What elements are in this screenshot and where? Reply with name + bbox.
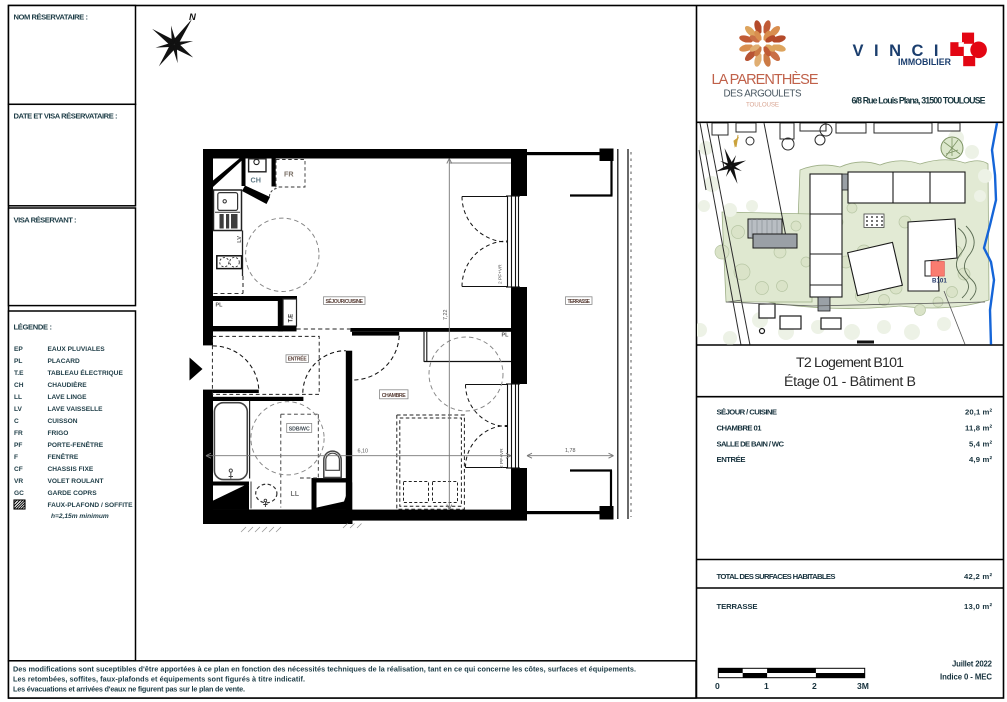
svg-text:GC: GC	[14, 490, 24, 497]
svg-text:NOM RÉSERVATAIRE :: NOM RÉSERVATAIRE :	[14, 13, 89, 22]
svg-text:T.E: T.E	[14, 370, 24, 377]
svg-text:SÉJOUR/CUISINE: SÉJOUR/CUISINE	[325, 297, 363, 305]
svg-text:SÉJOUR / CUISINE: SÉJOUR / CUISINE	[717, 408, 778, 417]
svg-text:h=2,15m minimum: h=2,15m minimum	[51, 513, 109, 520]
svg-text:F: F	[14, 454, 18, 461]
svg-text:TOTAL DES SURFACES HABITABLES: TOTAL DES SURFACES HABITABLES	[717, 572, 836, 581]
svg-text:VOLET ROULANT: VOLET ROULANT	[48, 478, 104, 485]
svg-text:FENÊTRE: FENÊTRE	[48, 452, 79, 461]
svg-text:6,10: 6,10	[358, 449, 369, 455]
svg-text:PORTE-FENÊTRE: PORTE-FENÊTRE	[48, 440, 104, 449]
svg-text:TERRASSE: TERRASSE	[567, 299, 590, 305]
svg-text:T2 Logement B101: T2 Logement B101	[796, 355, 904, 371]
svg-text:FAUX-PLAFOND / SOFFITE: FAUX-PLAFOND / SOFFITE	[48, 502, 134, 509]
svg-text:N: N	[189, 12, 197, 23]
svg-text:20,1 m²: 20,1 m²	[965, 408, 992, 417]
svg-text:CHAMBRE: CHAMBRE	[382, 393, 407, 399]
svg-text:4,9 m²: 4,9 m²	[969, 455, 992, 464]
svg-text:SALLE DE BAIN / WC: SALLE DE BAIN / WC	[717, 440, 785, 449]
svg-text:0: 0	[715, 681, 720, 691]
svg-text:DES ARGOULETS: DES ARGOULETS	[724, 89, 802, 100]
svg-text:PLACARD: PLACARD	[48, 358, 80, 365]
svg-text:1: 1	[764, 681, 769, 691]
svg-text:T.E: T.E	[289, 314, 295, 323]
svg-text:LL: LL	[14, 394, 22, 401]
svg-text:FR: FR	[284, 170, 294, 179]
svg-text:Des modifications sont sucepti: Des modifications sont suceptibles d'êtr…	[13, 665, 636, 674]
svg-text:42,2 m²: 42,2 m²	[964, 572, 992, 581]
svg-text:7,22: 7,22	[443, 310, 449, 321]
svg-text:LA PARENTHÈSE: LA PARENTHÈSE	[712, 71, 819, 88]
svg-text:EP: EP	[14, 346, 23, 353]
svg-text:VISA RÉSERVANT :: VISA RÉSERVANT :	[14, 216, 77, 225]
svg-text:EAUX PLUVIALES: EAUX PLUVIALES	[48, 346, 106, 353]
svg-text:TOULOUSE: TOULOUSE	[746, 102, 779, 109]
svg-text:LAVE LINGE: LAVE LINGE	[48, 394, 88, 401]
svg-text:2: 2	[812, 681, 817, 691]
svg-text:SDB/WC: SDB/WC	[289, 426, 310, 432]
svg-text:CH: CH	[251, 176, 261, 185]
svg-text:3M: 3M	[857, 681, 869, 691]
svg-text:LÉGENDE :: LÉGENDE :	[14, 323, 53, 332]
svg-text:CHASSIS FIXE: CHASSIS FIXE	[48, 466, 94, 473]
svg-text:TERRASSE: TERRASSE	[717, 602, 758, 611]
svg-text:Indice 0 - MEC: Indice 0 - MEC	[940, 673, 992, 682]
svg-text:VR: VR	[14, 478, 23, 485]
svg-text:LV: LV	[14, 406, 23, 413]
svg-text:GARDE COPRS: GARDE COPRS	[48, 490, 98, 497]
svg-text:LL: LL	[291, 491, 300, 498]
svg-text:11,8 m²: 11,8 m²	[965, 424, 992, 433]
svg-text:Étage 01 - Bâtiment B: Étage 01 - Bâtiment B	[784, 373, 916, 390]
svg-text:6/8 Rue Louis Plana, 31500 TOU: 6/8 Rue Louis Plana, 31500 TOULOUSE	[852, 96, 986, 106]
svg-text:C: C	[14, 418, 19, 425]
svg-text:Juillet 2022: Juillet 2022	[952, 660, 993, 669]
svg-text:Les évacuations et arrivées d': Les évacuations et arrivées d'eaux ne fi…	[13, 685, 245, 694]
svg-text:DATE ET VISA RÉSERVATAIRE :: DATE ET VISA RÉSERVATAIRE :	[14, 112, 118, 121]
svg-text:CF: CF	[14, 466, 23, 473]
svg-text:TABLEAU ÉLECTRIQUE: TABLEAU ÉLECTRIQUE	[48, 368, 124, 377]
svg-text:CUISSON: CUISSON	[48, 418, 78, 425]
svg-text:FR: FR	[14, 430, 23, 437]
svg-text:IMMOBILIER: IMMOBILIER	[898, 57, 952, 67]
svg-text:ENTRÉE: ENTRÉE	[717, 455, 746, 464]
svg-text:ENTRÉE: ENTRÉE	[288, 355, 308, 363]
svg-text:1,78: 1,78	[565, 448, 576, 454]
svg-text:CHAUDIÈRE: CHAUDIÈRE	[48, 380, 88, 389]
svg-text:PF: PF	[14, 442, 22, 449]
svg-text:PL: PL	[216, 303, 224, 309]
svg-text:CH: CH	[14, 382, 24, 389]
svg-text:PL: PL	[14, 358, 22, 365]
svg-text:5,4 m²: 5,4 m²	[969, 440, 992, 449]
svg-text:2 PF+VR: 2 PF+VR	[499, 448, 505, 468]
svg-text:PL: PL	[502, 333, 510, 339]
svg-text:13,0 m²: 13,0 m²	[964, 602, 992, 611]
svg-text:2 PF+VR: 2 PF+VR	[498, 264, 504, 284]
svg-text:B101: B101	[932, 278, 947, 285]
svg-text:FRIGO: FRIGO	[48, 430, 69, 437]
svg-text:LAVE VAISSELLE: LAVE VAISSELLE	[48, 406, 104, 413]
svg-text:CHAMBRE 01: CHAMBRE 01	[717, 424, 763, 433]
svg-text:Les retombées, soffites, faux-: Les retombées, soffites, faux-plafonds e…	[13, 675, 305, 684]
